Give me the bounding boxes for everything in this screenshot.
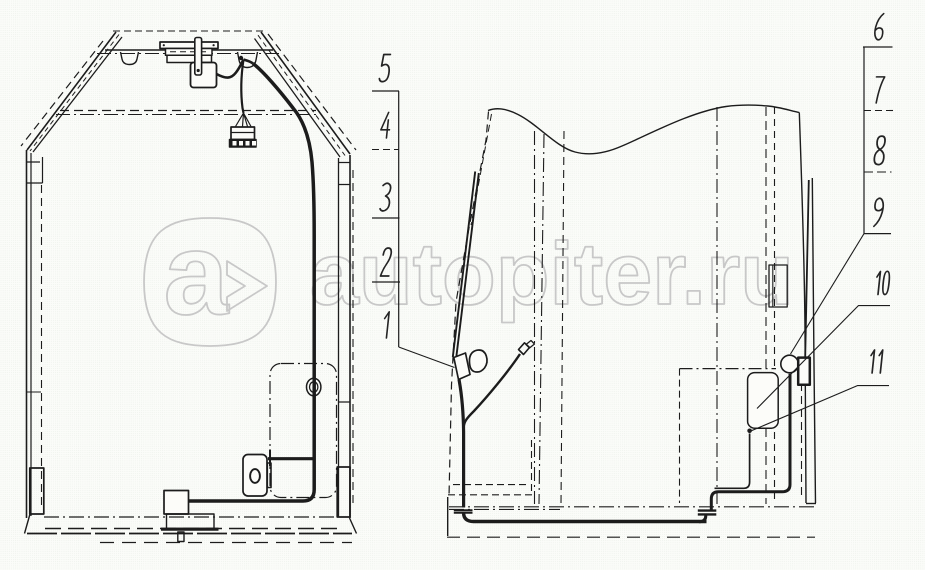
svg-text:autopiter.ru: autopiter.ru bbox=[310, 224, 794, 323]
svg-text:a: a bbox=[163, 208, 229, 339]
